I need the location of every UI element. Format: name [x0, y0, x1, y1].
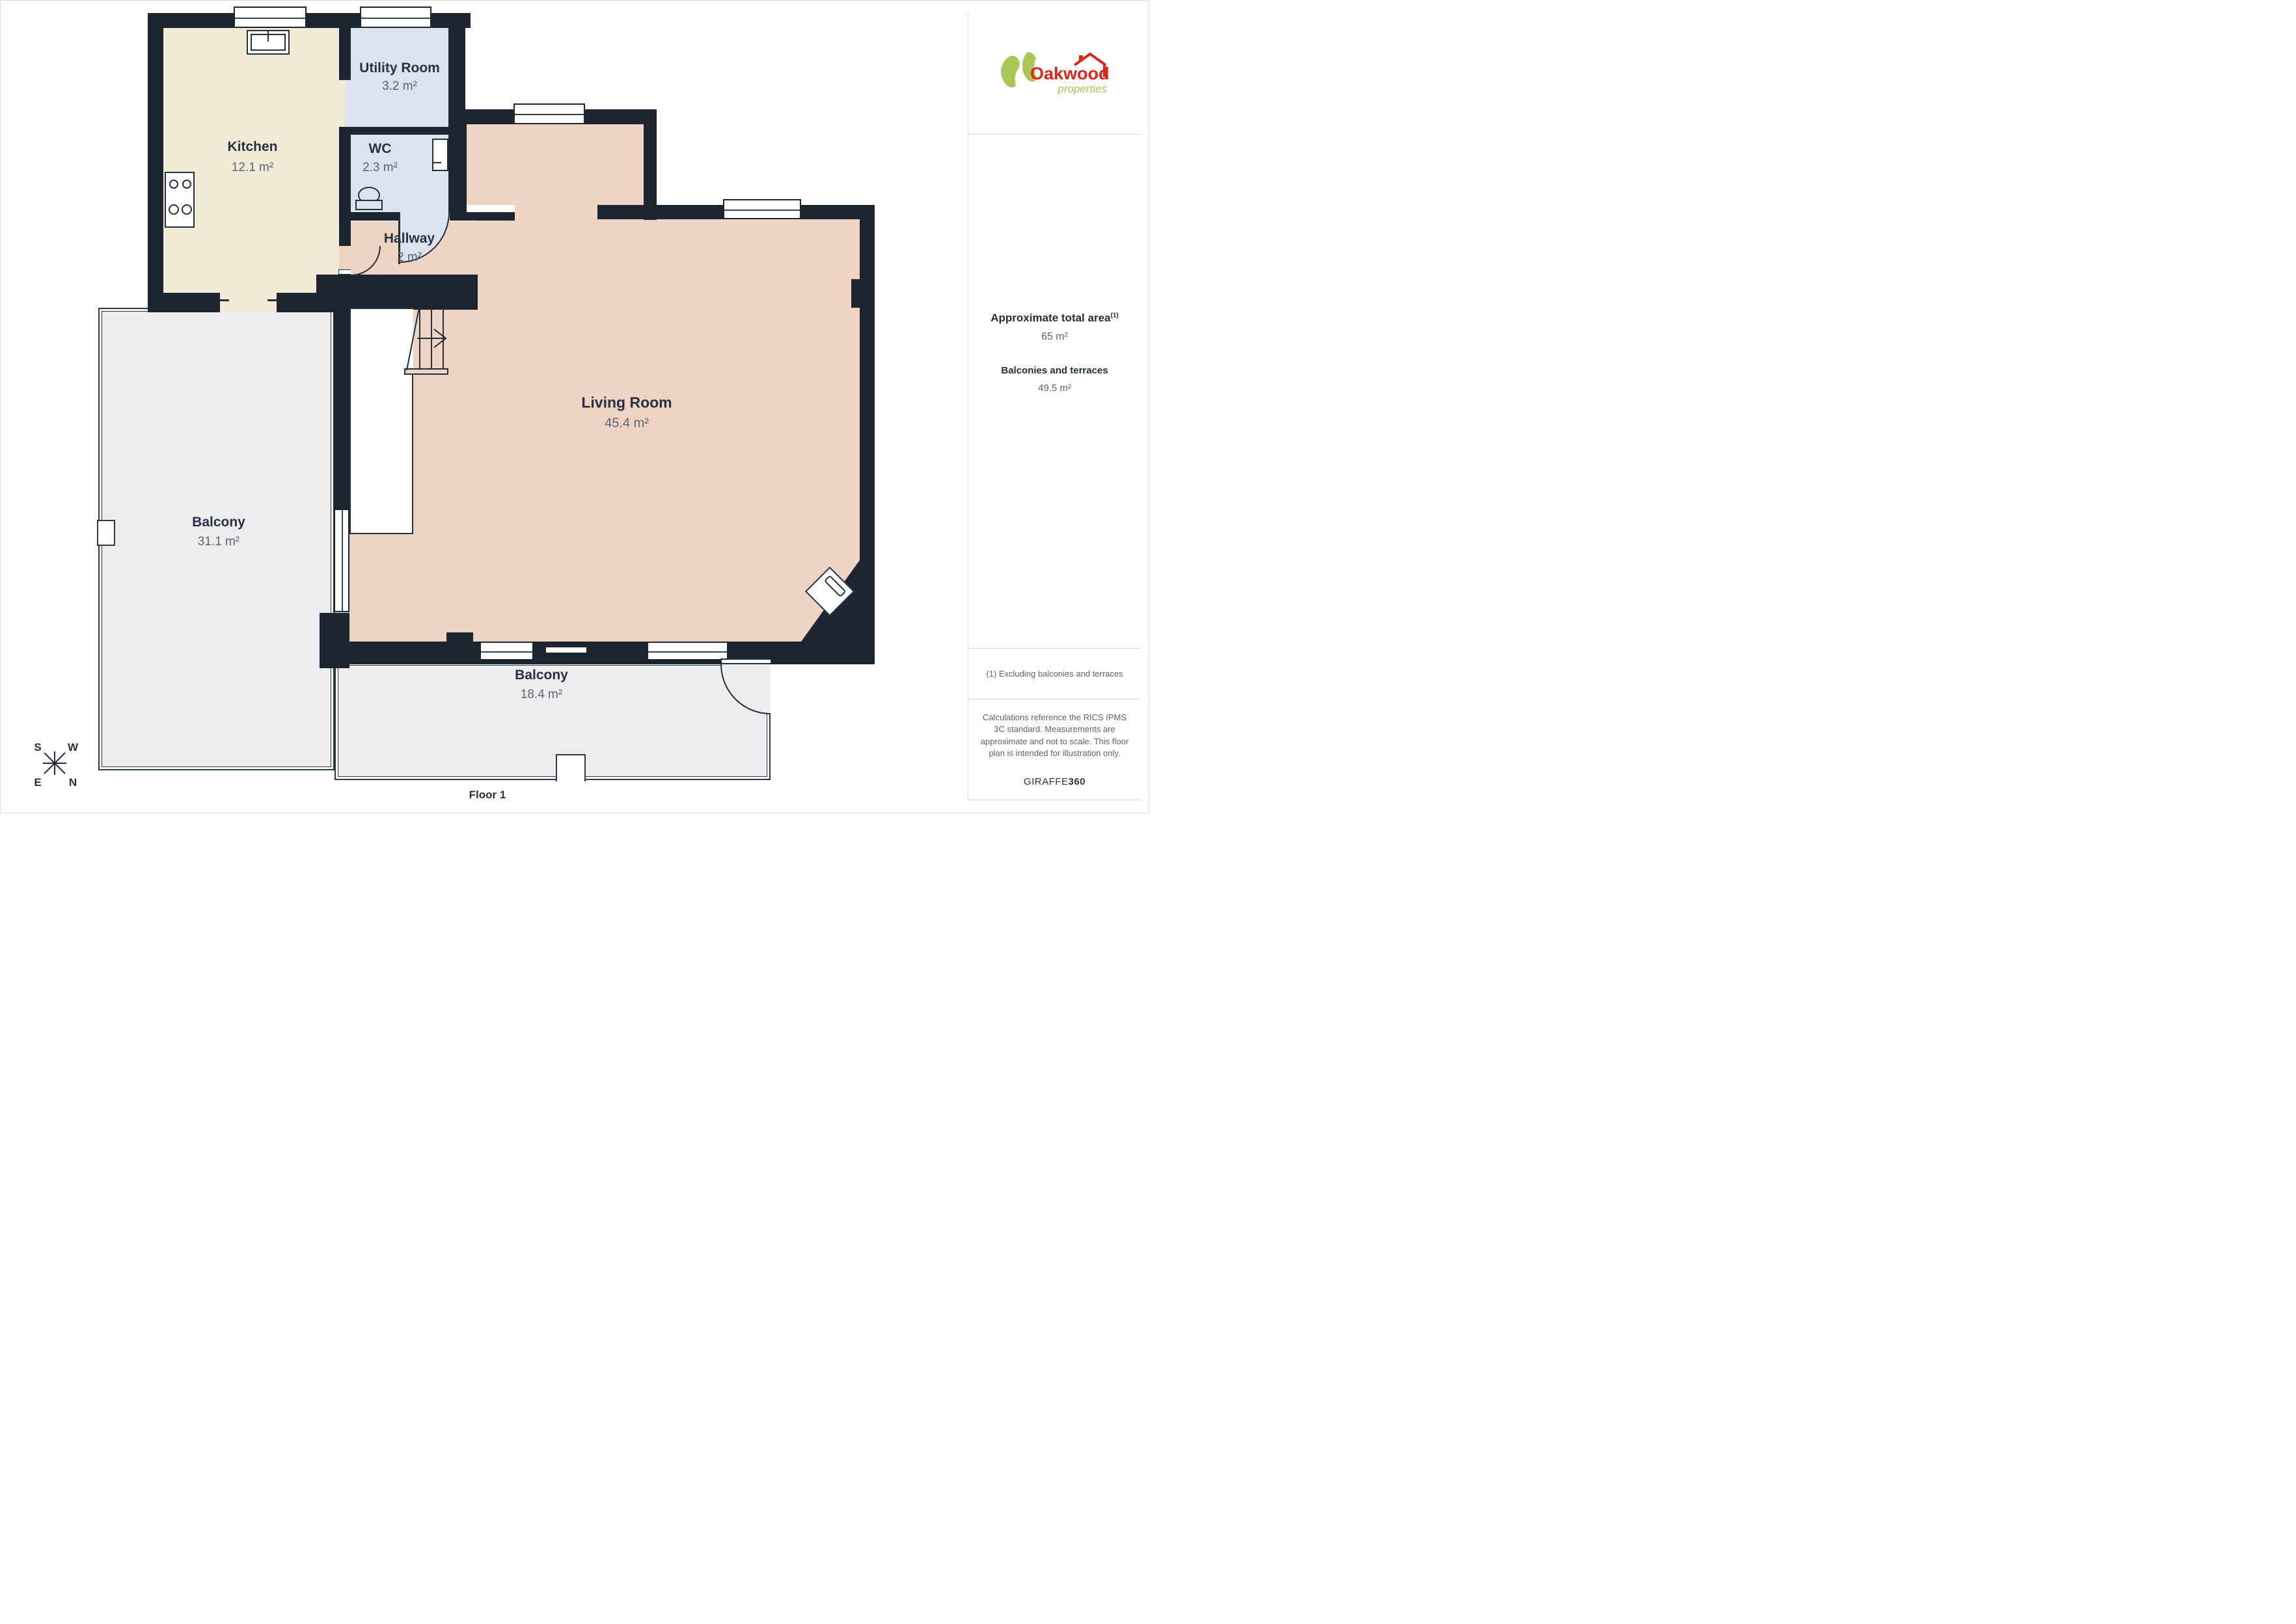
living-room-label: Living Room — [581, 394, 672, 412]
hob-burner — [169, 180, 178, 189]
hallway-area: 2 m² — [397, 250, 422, 265]
wall-utility-wc — [351, 127, 448, 135]
floor-label: Floor 1 — [469, 789, 506, 802]
balcony-bottom-area: 18.4 m² — [521, 688, 562, 702]
stair-direction-arrow — [391, 300, 469, 385]
balconies-title: Balconies and terraces — [1001, 365, 1108, 376]
total-area-marker: (1) — [1111, 312, 1119, 319]
sidebar-note-section: (1) Excluding balconies and terraces — [968, 649, 1141, 699]
window-pane-line — [235, 18, 305, 19]
brand-regular: GIRAFFE — [1024, 776, 1069, 787]
window-pane-line — [648, 651, 727, 653]
window-pane-line — [724, 210, 800, 211]
utility-floor — [351, 28, 448, 127]
sidebar-logo-section: Oakwood properties — [968, 12, 1141, 135]
wall-alcove-right — [644, 109, 657, 220]
kitchen-utility-doorway-right — [345, 80, 351, 127]
sidebar-disclaimer-section: Calculations reference the RICS IPMS 3C … — [968, 699, 1141, 800]
balcony-left-pillar-notch — [97, 520, 115, 546]
compass-east: E — [34, 776, 41, 789]
kitchen-label: Kitchen — [227, 139, 277, 155]
wc-area: 2.3 m² — [362, 161, 398, 175]
window-pane-line — [361, 18, 430, 19]
balcony-left-area: 31.1 m² — [198, 535, 239, 549]
utility-label: Utility Room — [359, 61, 440, 76]
living-room-area: 45.4 m² — [605, 416, 649, 431]
floorplan-page: Kitchen 12.1 m² Utility Room 3.2 m² WC 2… — [0, 0, 1149, 813]
kitchen-balcony-opening — [220, 293, 277, 312]
utility-area: 3.2 m² — [382, 79, 417, 94]
wall-pilaster-right — [851, 279, 860, 308]
wall-kitchen-bottom-left — [148, 293, 220, 312]
wall-left — [148, 13, 163, 309]
wc-basin — [432, 139, 448, 171]
kitchen-hob — [165, 172, 195, 228]
total-area-value: 65 m² — [1041, 331, 1068, 343]
living-bottom-window-1 — [480, 642, 534, 660]
disclaimer-text: Calculations reference the RICS IPMS 3C … — [978, 712, 1132, 759]
hallway-door-threshold — [338, 269, 351, 275]
living-bottom-sill — [545, 646, 588, 654]
wc-toilet-tank — [355, 200, 383, 210]
balcony-door-leaf — [720, 658, 772, 664]
compass-rose: S W E N — [14, 727, 95, 802]
alcove-floor — [467, 124, 644, 205]
stair-void-right-edge — [412, 370, 413, 534]
compass-south: S — [34, 741, 41, 753]
hob-burner — [182, 204, 192, 215]
wall-wc-hallway-left — [351, 212, 400, 221]
wall-living-right — [860, 205, 875, 664]
wall-left-strip — [333, 308, 349, 509]
window-pane-line — [342, 510, 343, 611]
balconies-value: 49.5 m² — [1038, 383, 1071, 394]
living-room-floor-lobe — [349, 534, 478, 642]
wall-kitchen-wc — [339, 127, 351, 212]
wc-basin-line — [433, 162, 441, 163]
living-bottom-window-2 — [647, 642, 728, 660]
hallway-label: Hallway — [384, 231, 435, 247]
kitchen-utility-doorway-left — [339, 80, 345, 127]
brand-bold: 360 — [1068, 776, 1086, 787]
alcove-window — [513, 103, 585, 124]
kitchen-window — [234, 7, 307, 28]
oak-leaf-icon — [1001, 56, 1020, 88]
balcony-bottom-railing-notch — [556, 754, 586, 781]
wall-wc-hallway-right — [450, 212, 515, 221]
logo-house-chimney — [1079, 55, 1083, 61]
agency-logo: Oakwood properties — [991, 48, 1119, 98]
utility-window — [360, 7, 431, 28]
total-area-title-text: Approximate total area — [991, 312, 1110, 324]
kitchen-area: 12.1 m² — [232, 161, 273, 175]
kitchen-opening-sill-left — [220, 299, 229, 301]
compass-north: N — [69, 776, 77, 789]
logo-name: Oakwood — [1030, 64, 1110, 83]
sidebar: Oakwood properties Approximate total are… — [968, 12, 1141, 800]
excluding-note: (1) Excluding balconies and terraces — [977, 669, 1132, 679]
total-area-title: Approximate total area(1) — [991, 312, 1118, 325]
wall-pillar-bump — [446, 632, 473, 642]
wall-living-bottom — [349, 642, 875, 664]
living-top-window — [723, 199, 801, 219]
kitchen-opening-sill-right — [267, 299, 277, 301]
window-pane-line — [515, 114, 584, 115]
kitchen-sink-faucet — [267, 31, 269, 42]
wc-label: WC — [369, 141, 392, 157]
wall-corner-block — [320, 613, 349, 668]
compass-west: W — [68, 741, 79, 753]
living-room-floor — [478, 219, 860, 642]
balcony-left-label: Balcony — [192, 515, 245, 530]
wall-alcove-left — [452, 109, 467, 212]
wall-kitchen-hallway — [339, 212, 351, 246]
window-pane-line — [481, 651, 532, 653]
sidebar-area-section: Approximate total area(1) 65 m² Balconie… — [968, 135, 1141, 649]
giraffe360-brand: GIRAFFE360 — [1024, 776, 1086, 787]
kitchen-sink — [247, 30, 290, 55]
wall-kitchen-utility — [339, 28, 351, 80]
balcony-bottom-label: Balcony — [515, 668, 568, 683]
logo-tagline: properties — [1057, 83, 1107, 95]
living-left-french-window — [334, 509, 349, 612]
hob-burner — [182, 180, 191, 189]
hob-burner — [169, 204, 179, 215]
